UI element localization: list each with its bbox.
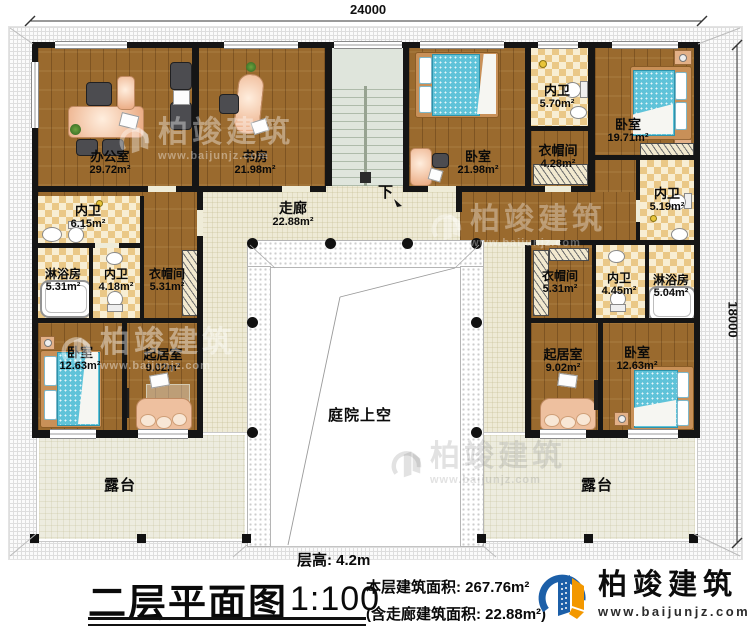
wall [525,245,531,438]
sofa-cushion [156,416,172,429]
room-area: 9.02m² [546,362,581,374]
room-area: 5.19m² [650,201,685,213]
wall [38,318,203,323]
window [55,41,127,49]
wall [592,245,596,318]
nightstand [614,412,629,426]
door-opening [148,186,176,192]
pillow [44,356,57,386]
column [471,427,482,438]
wall [325,48,332,186]
plant [246,62,256,72]
sink [42,227,62,242]
closet [549,248,589,261]
floor-plan-canvas: 24000 18000 [0,0,750,638]
stair-newel [360,172,371,183]
room-label-terrace-left: 露台 [104,478,136,495]
wall [531,126,588,131]
column-base [477,534,486,543]
room-name: 卧室 [465,150,491,164]
column-base [30,534,39,543]
door-opening [95,243,119,248]
door-opening [636,200,640,222]
wall [140,196,144,323]
pillow [675,102,687,130]
room-area: 4.18m² [99,281,134,293]
room-label-bath-right: 内卫4.45m² [602,272,637,297]
room-name: 卧室 [615,118,641,132]
title-underline [88,617,366,626]
column [247,317,258,328]
room-area: 21.98m² [235,164,276,176]
room-label-living-right: 起居室9.02m² [543,348,582,374]
room-area: 5.31m² [46,281,81,293]
column [325,238,336,249]
room-label-bath-c: 内卫6.15m² [71,204,106,230]
window [628,429,678,439]
pillow [419,57,432,84]
wall [531,318,694,323]
room-label-cloak-left: 衣帽间5.31m² [149,268,185,293]
wall [645,245,649,318]
column-base [242,534,251,543]
room-label-courtyard: 庭院上空 [328,408,392,425]
column-base [689,534,698,543]
terrace-left [37,433,247,541]
room-name: 书房 [242,150,268,164]
desk-chair [432,153,449,168]
column [471,317,482,328]
column-base [584,534,593,543]
room-name: 内卫 [654,187,680,201]
floor-area-note: 本层建筑面积: 267.76m² [366,576,529,597]
room-area: 22.88m² [273,216,314,228]
room-label-terrace-right: 露台 [581,478,613,495]
room-area: 6.15m² [71,218,106,230]
room-label-shower-right: 淋浴房5.04m² [653,274,689,299]
sofa-cushion [560,416,576,429]
courtyard-railing-top [247,240,484,268]
door-opening [545,186,571,192]
room-label-bedroom-left: 卧室12.63m² [60,346,101,372]
room-label-office: 办公室29.72m² [90,150,131,176]
nightstand [674,50,692,65]
room-name: 内卫 [104,268,128,281]
pillow [677,372,689,398]
wall [456,192,462,212]
room-label-living-left: 起居室9.02m² [143,348,182,374]
window [540,429,586,439]
room-area: 29.72m² [90,164,131,176]
toilet-tank [610,304,626,312]
column-base [137,534,146,543]
room-name: 衣帽间 [542,270,578,283]
room-name: 卧室 [624,346,650,360]
brand-name: 柏竣建筑 [598,571,750,600]
room-label-bedroom-right: 卧室12.63m² [617,346,658,372]
room-name: 淋浴房 [45,268,81,281]
room-label-bedroom-b: 卧室19.71m² [608,118,649,144]
sofa-cushion [576,413,591,426]
room-label-bath-left: 内卫4.18m² [99,268,134,293]
coffee-table [557,373,578,389]
window [50,429,96,439]
light-fixture [650,215,657,222]
dimension-top: 24000 [350,2,386,17]
door-opening [197,210,203,236]
room-area: 21.98m² [458,164,499,176]
wall [595,155,694,160]
room-label-cloak-a: 衣帽间4.28m² [538,144,577,170]
room-area: 12.63m² [617,360,658,372]
side-table [173,90,190,105]
toilet-tank [107,304,123,312]
meeting-chair [170,62,192,90]
wall [89,248,93,318]
room-name: 衣帽间 [538,144,577,158]
pillow [419,86,432,113]
room-name: 起居室 [143,348,182,362]
window [538,41,578,49]
room-area: 5.31m² [543,283,578,295]
room-label-bedroom-a: 卧室21.98m² [458,150,499,176]
room-name: 衣帽间 [149,268,185,281]
bedroom-desk [410,148,432,186]
room-name: 走廊 [279,201,307,216]
window [334,41,402,49]
wall [192,48,199,186]
brand-url: www.baijunjz.com [598,604,750,619]
pillow [44,390,57,420]
room-name: 内卫 [544,84,570,98]
stairs-down-label: 下 [378,185,394,202]
wall [122,323,127,430]
window [612,41,678,49]
room-label-shower-left: 淋浴房5.31m² [45,268,81,293]
room-area: 5.31m² [150,281,185,293]
room-name: 露台 [104,478,136,495]
column [247,427,258,438]
window [138,429,188,439]
room-name: 办公室 [90,150,129,164]
room-label-cloak-right: 衣帽间5.31m² [542,270,578,295]
sofa-cushion [544,414,560,427]
courtyard-railing-right [460,266,484,547]
room-name: 露台 [581,478,613,495]
room-label-corridor: 走廊22.88m² [273,201,314,228]
door-opening [536,240,560,245]
dimension-right: 18000 [726,292,741,348]
room-name: 卧室 [67,346,93,360]
room-area: 5.04m² [654,287,689,299]
office-cabinet [117,76,135,110]
room-name: 起居室 [543,348,582,362]
courtyard-void [247,240,484,547]
stair-rail [364,86,367,186]
study-chair [219,94,239,114]
brand-logo-icon [536,566,590,624]
brand-logo: 柏竣建筑 www.baijunjz.com [536,566,750,624]
room-area: 19.71m² [608,132,649,144]
room-label-bath-a: 内卫5.70m² [540,84,575,110]
room-area: 4.45m² [602,285,637,297]
sink [608,250,625,263]
sink [106,252,123,265]
column [471,238,482,249]
room-name: 庭院上空 [328,408,392,425]
wall [588,48,595,192]
room-area: 5.70m² [540,98,575,110]
sofa-cushion [140,414,156,427]
door-opening [282,186,310,192]
wall [525,48,531,192]
stairs-down-text: 下 [378,185,394,202]
floor-height-note: 层高: 4.2m [297,549,370,570]
room-area: 4.28m² [541,158,576,170]
room-name: 内卫 [607,272,631,285]
room-name: 淋浴房 [653,274,689,287]
room-label-bath-b: 内卫5.19m² [650,187,685,213]
wall [598,323,603,430]
corridor-area-note: (含走廊建筑面积: 22.88m²) [366,603,546,624]
toilet-tank [580,81,588,98]
plant [70,124,81,135]
pillow [675,72,687,100]
column [247,238,258,249]
light-fixture [539,60,547,68]
mattress [432,54,480,116]
office-chair [86,82,112,106]
wall [403,48,409,186]
window [420,41,504,49]
column [402,238,413,249]
room-label-study: 书房21.98m² [235,150,276,176]
window [31,62,39,128]
room-area: 12.63m² [60,360,101,372]
window [224,41,298,49]
nightstand [40,336,55,350]
door-opening [428,186,456,192]
pillow [677,400,689,426]
sofa-cushion [172,413,187,426]
courtyard-railing-left [247,266,271,547]
room-area: 9.02m² [146,362,181,374]
room-name: 内卫 [75,204,101,218]
meeting-chair [170,102,192,130]
stair-landing [332,48,403,86]
